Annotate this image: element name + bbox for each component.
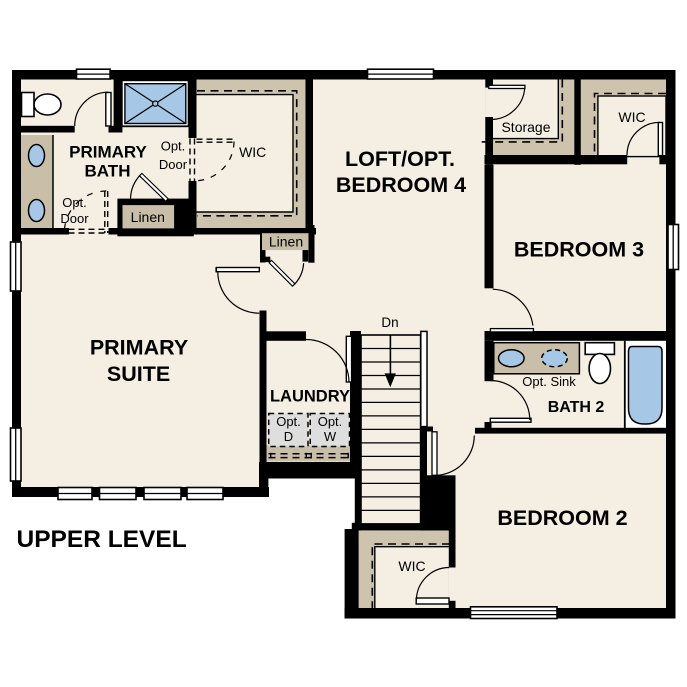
svg-text:WIC: WIC	[398, 558, 425, 574]
svg-text:Door: Door	[60, 211, 89, 226]
svg-text:SUITE: SUITE	[107, 362, 170, 386]
svg-text:LOFT/OPT.: LOFT/OPT.	[345, 147, 455, 171]
svg-text:Linen: Linen	[269, 234, 303, 250]
svg-text:PRIMARY: PRIMARY	[69, 143, 147, 162]
svg-text:BEDROOM 4: BEDROOM 4	[336, 173, 466, 197]
svg-text:Opt.: Opt.	[318, 414, 343, 429]
svg-text:W: W	[324, 429, 337, 444]
svg-text:Dn: Dn	[381, 315, 398, 330]
svg-text:Opt.: Opt.	[276, 414, 301, 429]
svg-text:BEDROOM 3: BEDROOM 3	[514, 238, 644, 262]
svg-text:BATH: BATH	[85, 162, 131, 181]
svg-text:LAUNDRY: LAUNDRY	[270, 388, 350, 406]
svg-text:BATH 2: BATH 2	[548, 399, 605, 416]
svg-text:WIC: WIC	[618, 109, 645, 125]
svg-text:BEDROOM 2: BEDROOM 2	[497, 506, 627, 530]
svg-text:Opt. Sink: Opt. Sink	[522, 374, 576, 389]
svg-text:Opt.: Opt.	[62, 195, 87, 210]
svg-text:Storage: Storage	[501, 119, 550, 135]
svg-text:D: D	[284, 429, 293, 444]
svg-text:PRIMARY: PRIMARY	[90, 335, 188, 359]
svg-text:UPPER LEVEL: UPPER LEVEL	[17, 526, 187, 553]
svg-text:WIC: WIC	[239, 144, 266, 160]
svg-text:Door: Door	[159, 157, 188, 172]
svg-text:Opt.: Opt.	[161, 139, 186, 154]
svg-text:Linen: Linen	[131, 209, 165, 225]
